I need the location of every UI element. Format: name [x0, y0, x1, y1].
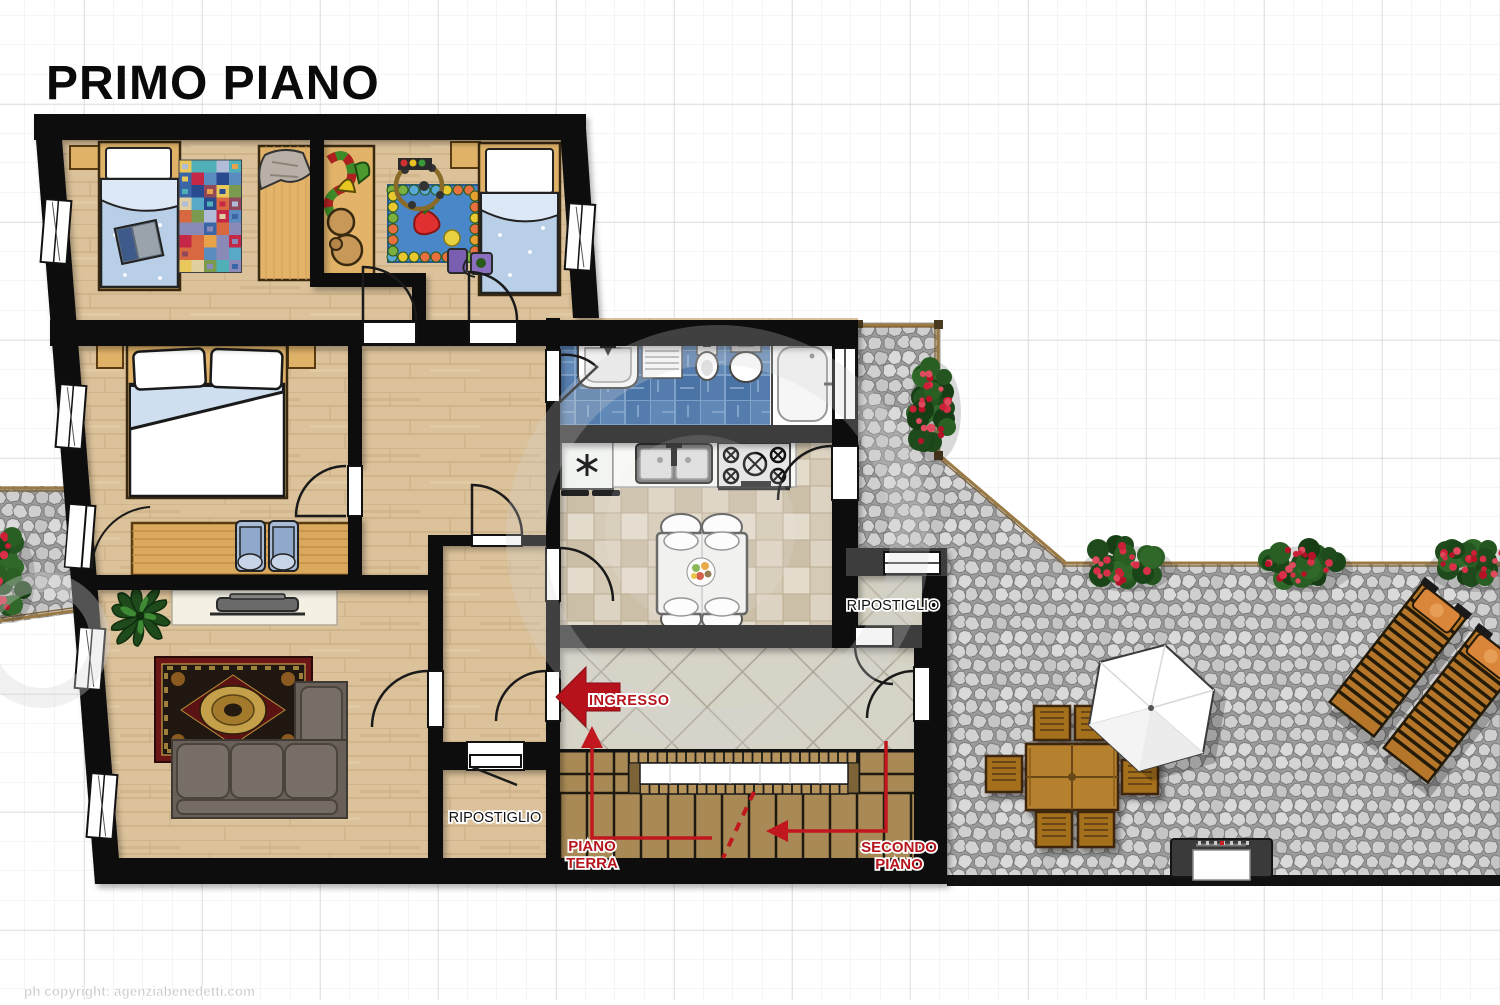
svg-text:INGRESSO: INGRESSO: [589, 693, 670, 709]
svg-text:PIANO: PIANO: [875, 856, 923, 873]
svg-text:SECONDO: SECONDO: [861, 839, 937, 856]
svg-text:RIPOSTIGLIO: RIPOSTIGLIO: [449, 810, 542, 826]
svg-text:RIPOSTIGLIO: RIPOSTIGLIO: [847, 598, 940, 614]
svg-text:PRIMO PIANO: PRIMO PIANO: [46, 57, 380, 110]
svg-text:TERRA: TERRA: [566, 855, 618, 872]
svg-text:PIANO: PIANO: [568, 838, 616, 855]
svg-text:ph copyright: agenziabenedetti: ph copyright: agenziabenedetti.com: [24, 984, 255, 999]
